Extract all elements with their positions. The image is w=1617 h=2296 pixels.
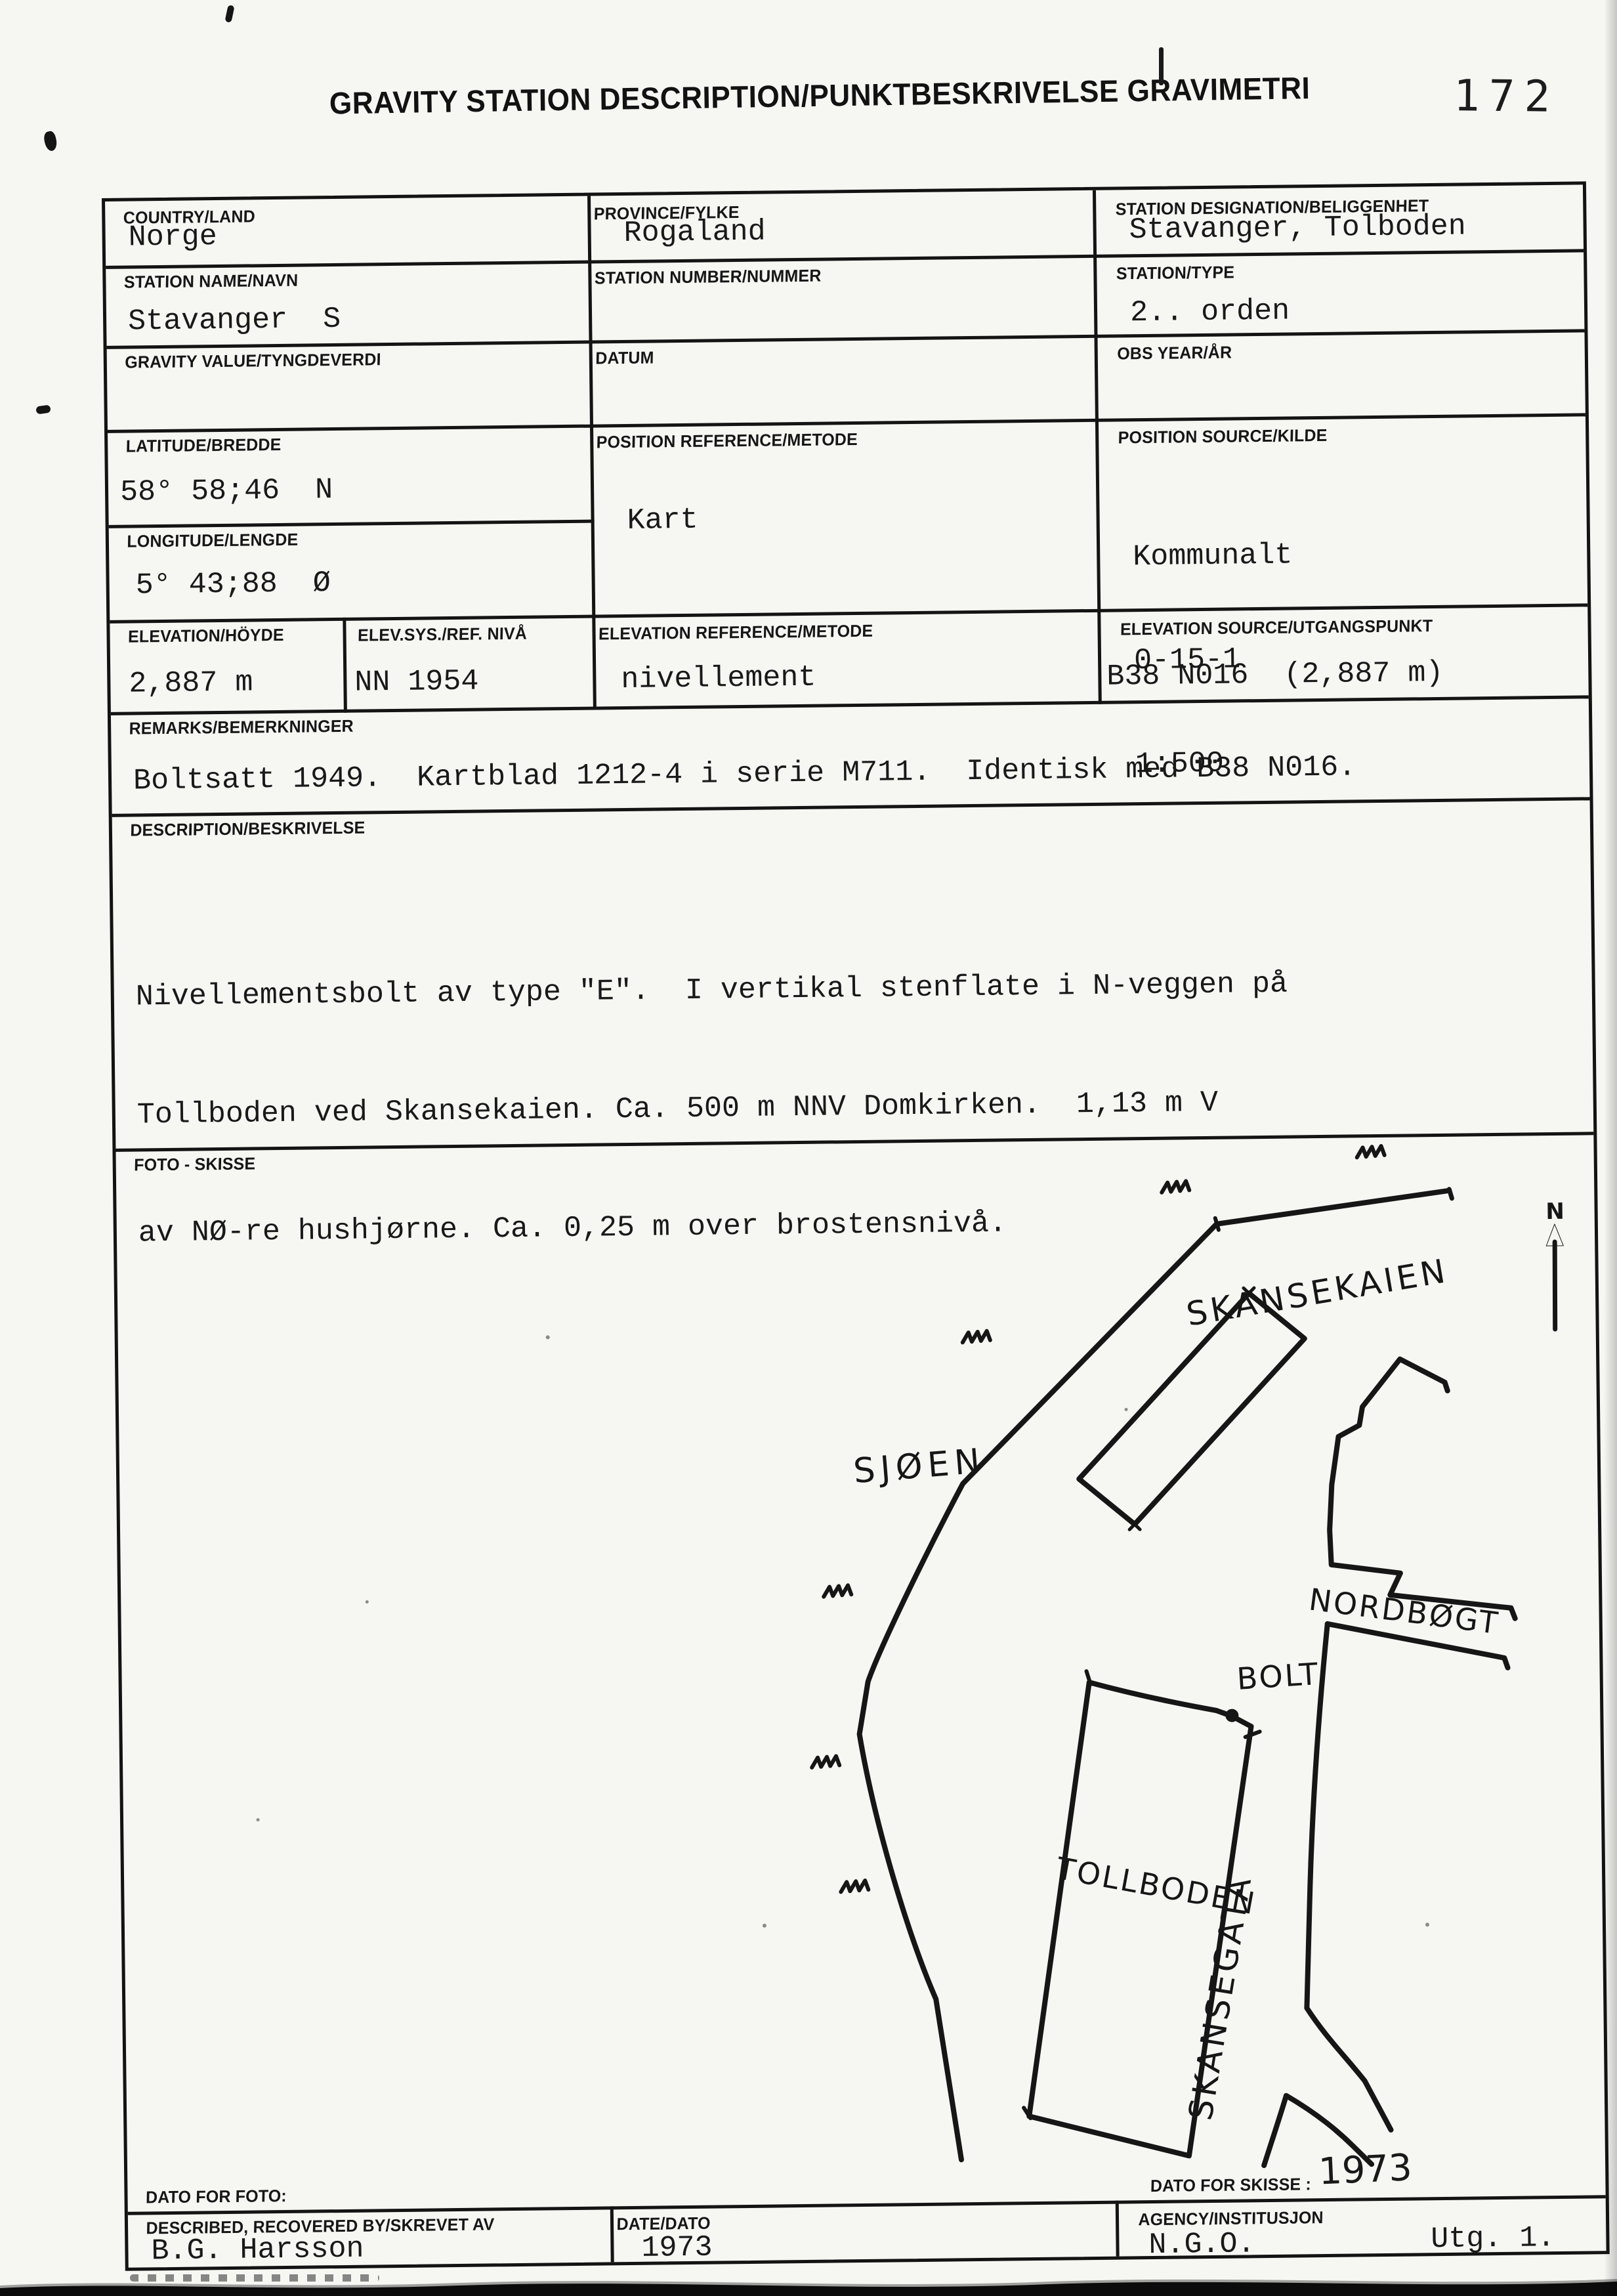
scanner-edge-strip xyxy=(0,2268,1617,2296)
form-table: COUNTRY/LAND Norge PROVINCE/FYLKE Rogala… xyxy=(102,181,1610,2270)
scanned-document-page: GRAVITY STATION DESCRIPTION/PUNKTBESKRIV… xyxy=(0,0,1617,2296)
field-value-designation: Stavanger, Tolboden xyxy=(1129,209,1466,247)
scan-mark-exclamation xyxy=(1159,47,1164,85)
position-source-line: Kommunalt xyxy=(1133,537,1293,576)
sketch-label-bolt: BOLT xyxy=(1236,1656,1321,1697)
field-label-station-type: STATION/TYPE xyxy=(1116,262,1235,284)
scan-speck xyxy=(224,5,234,23)
field-value-agency-utg: Utg. 1. xyxy=(1431,2221,1555,2256)
sketch-coastline xyxy=(853,1191,1460,2161)
field-value-position-reference: Kart xyxy=(627,503,698,538)
field-value-elevation-reference: nivellement xyxy=(621,661,816,696)
field-value-province: Rogaland xyxy=(623,215,766,250)
sketch-label-skansekaien: SKANSEKAIEN xyxy=(1184,1252,1451,1334)
field-label-elevation: ELEVATION/HÖYDE xyxy=(128,625,284,647)
description-line: Nivellementsbolt av type "E". I vertikal… xyxy=(135,959,1288,1023)
north-arrow-label: N xyxy=(1545,1199,1564,1225)
field-value-described-by: B.G. Harsson xyxy=(151,2232,364,2268)
sketch-label-nordbogt: NORDBØGT xyxy=(1307,1581,1501,1641)
field-label-station-number: STATION NUMBER/NUMMER xyxy=(595,266,822,289)
field-label-position-reference: POSITION REFERENCE/METODE xyxy=(596,429,858,453)
field-value-station-name: Stavanger S xyxy=(128,303,341,339)
field-label-position-source: POSITION SOURCE/KILDE xyxy=(1118,425,1328,448)
sketch-tollboden-corner-tick xyxy=(1246,1732,1260,1737)
field-value-longitude: 5° 43;88 Ø xyxy=(135,566,331,602)
scan-noise-dots xyxy=(251,1325,1429,1940)
field-label-gravity-value: GRAVITY VALUE/TYNGDEVERDI xyxy=(125,349,381,372)
field-value-elevation: 2,887 m xyxy=(129,666,253,700)
field-label-remarks: REMARKS/BEMERKNINGER xyxy=(129,716,354,739)
description-line: Tollboden ved Skansekaien. Ca. 500 m NNV… xyxy=(136,1077,1289,1141)
field-label-datum: DATUM xyxy=(595,347,654,368)
water-squiggle-icons xyxy=(805,1146,1393,1892)
field-label-station-name: STATION NAME/NAVN xyxy=(124,270,299,293)
field-value-latitude: 58° 58;46 N xyxy=(120,473,333,509)
sketch-ne-building-and-street xyxy=(1328,1358,1515,1621)
sketch-quay-end-tick xyxy=(1449,1189,1452,1199)
field-label-elev-sys: ELEV.SYS./REF. NIVÅ xyxy=(358,624,528,646)
field-label-elevation-reference: ELEVATION REFERENCE/METODE xyxy=(598,621,873,645)
field-value-country: Norge xyxy=(128,220,217,255)
field-value-station-type: 2.. orden xyxy=(1130,294,1290,330)
field-label-latitude: LATITUDE/BREDDE xyxy=(125,435,281,457)
field-label-dato-foto: DATO FOR FOTO: xyxy=(146,2186,287,2207)
field-label-longitude: LONGITUDE/LENGDE xyxy=(127,530,299,552)
field-value-elevation-source: B38 N016 (2,887 m) xyxy=(1106,656,1444,694)
field-value-dato-skisse: 1973 xyxy=(1318,2146,1413,2194)
sketch-skansegata-east-side xyxy=(1303,1623,1391,2131)
field-value-agency: N.G.O. xyxy=(1148,2227,1255,2262)
field-value-date: 1973 xyxy=(641,2231,713,2265)
field-label-dato-skisse: DATO FOR SKISSE : xyxy=(1150,2174,1312,2196)
site-sketch-map: N SKANSEKAIEN SJØEN BOLT NORDBØGT TOLLBO… xyxy=(112,1128,1608,2182)
field-value-elev-sys: NN 1954 xyxy=(354,665,479,700)
field-label-obs-year: OBS YEAR/ÅR xyxy=(1117,342,1232,364)
page-number: 172 xyxy=(1454,70,1560,122)
scan-speck xyxy=(35,405,51,415)
north-arrow-shaft xyxy=(1554,1242,1556,1329)
field-label-description: DESCRIPTION/BESKRIVELSE xyxy=(130,818,366,841)
page-title: GRAVITY STATION DESCRIPTION/PUNKTBESKRIV… xyxy=(329,70,1291,121)
field-label-agency: AGENCY/INSTITUSJON xyxy=(1138,2207,1324,2230)
scan-speck xyxy=(43,130,59,152)
field-label-elevation-source: ELEVATION SOURCE/UTGANGSPUNKT xyxy=(1120,616,1433,639)
page-edge-shadow xyxy=(1604,0,1617,2296)
sketch-label-sjoen: SJØEN xyxy=(852,1441,986,1491)
